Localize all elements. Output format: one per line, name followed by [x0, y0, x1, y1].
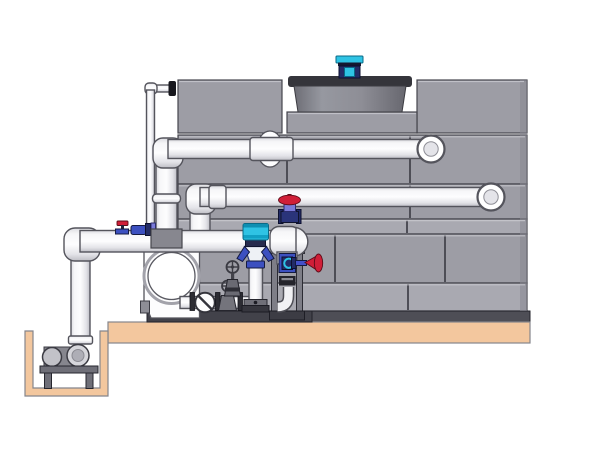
upper-pipe-run	[168, 140, 420, 159]
casing-right-shade	[520, 80, 527, 311]
lower-pipe-union	[209, 186, 226, 209]
pump-stand-top	[40, 366, 98, 373]
red-lever-handle	[117, 221, 128, 226]
slab-body	[108, 322, 530, 343]
red-handwheel	[279, 195, 301, 205]
ball-valve-flange	[146, 224, 151, 236]
fan-motor-band	[338, 63, 361, 67]
pit-pump-motor-bell	[43, 348, 62, 367]
concrete-slab	[108, 322, 530, 343]
riser-bolt	[254, 301, 258, 305]
pump-stand-leg	[45, 373, 52, 389]
valve-stem	[231, 273, 234, 280]
pump-stand-leg	[86, 373, 93, 389]
frame-panel	[279, 276, 296, 286]
handwheel-hub	[231, 265, 234, 268]
pit-pump-eye	[72, 350, 84, 362]
injector-collar	[247, 261, 265, 268]
casing-panel-top-left	[178, 80, 282, 133]
casing-panel-fan-deck	[287, 112, 417, 133]
valve-flange	[225, 288, 240, 292]
cooling-tower-diagram	[0, 0, 600, 450]
pipe-flange	[190, 293, 195, 311]
upper-drop-flange	[153, 194, 181, 203]
fan-motor-window	[345, 68, 355, 77]
illustration-canvas	[0, 0, 600, 450]
upper-pipe-end-dome	[424, 142, 438, 156]
upper-pipe-union	[250, 138, 293, 161]
drop-leg-flange	[69, 336, 93, 344]
injector-riser	[249, 265, 263, 302]
header-drop-leg	[71, 253, 90, 339]
ball-valve-body	[131, 226, 146, 235]
casing-panel-top-right	[417, 80, 527, 133]
valve-stem	[296, 261, 307, 266]
riser-globe-valve	[279, 195, 302, 224]
fan-motor-cap	[336, 56, 363, 63]
fan-cowl-body	[294, 86, 406, 112]
gate-valve-body	[219, 296, 237, 311]
fan-motor	[336, 56, 363, 78]
red-handwheel	[314, 254, 322, 272]
lower-pipe-end-dome	[484, 190, 498, 204]
fan-cowl	[288, 76, 412, 112]
lower-pipe-run	[200, 188, 482, 207]
frame-bottom-beam	[270, 311, 305, 320]
canister-band	[244, 235, 269, 239]
globe-valve-body	[281, 212, 299, 223]
canister-base	[246, 240, 266, 247]
frame-panel-slot	[282, 278, 294, 280]
pump-volute-inlet	[148, 253, 195, 300]
makeup-pipe-flange	[169, 81, 177, 96]
riser-base-plate	[242, 306, 269, 313]
housing-foot	[141, 301, 150, 313]
valve-body	[116, 229, 129, 234]
drop-connection-box	[151, 229, 182, 248]
canister-lid	[244, 224, 269, 228]
